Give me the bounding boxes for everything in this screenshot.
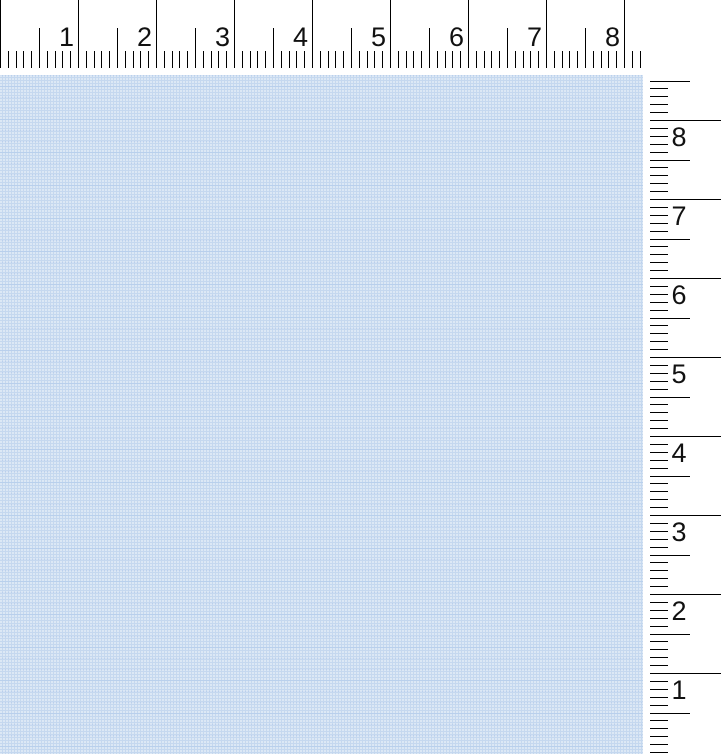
v-ruler-number-1: 1	[671, 675, 686, 705]
horizontal-ruler: 12345678	[0, 0, 721, 75]
canvas-area[interactable]	[0, 75, 643, 754]
h-ruler-number-3: 3	[215, 22, 230, 52]
vertical-ruler: 87654321	[643, 0, 721, 754]
v-ruler-number-2: 2	[671, 596, 686, 626]
v-ruler-number-6: 6	[671, 280, 686, 310]
ruler-screen: 12345678 87654321	[0, 0, 721, 754]
h-ruler-number-4: 4	[293, 22, 308, 52]
v-ruler-number-7: 7	[671, 201, 686, 231]
h-ruler-number-5: 5	[371, 22, 386, 52]
h-ruler-number-2: 2	[137, 22, 152, 52]
vertical-ruler-ticks: 87654321	[643, 0, 721, 754]
h-ruler-number-7: 7	[527, 22, 542, 52]
h-ruler-number-8: 8	[605, 22, 620, 52]
v-ruler-number-3: 3	[671, 517, 686, 547]
v-ruler-number-4: 4	[671, 438, 686, 468]
v-ruler-number-5: 5	[671, 359, 686, 389]
v-ruler-number-8: 8	[671, 122, 686, 152]
horizontal-ruler-ticks: 12345678	[0, 0, 721, 75]
h-ruler-number-6: 6	[449, 22, 464, 52]
h-ruler-number-1: 1	[59, 22, 74, 52]
